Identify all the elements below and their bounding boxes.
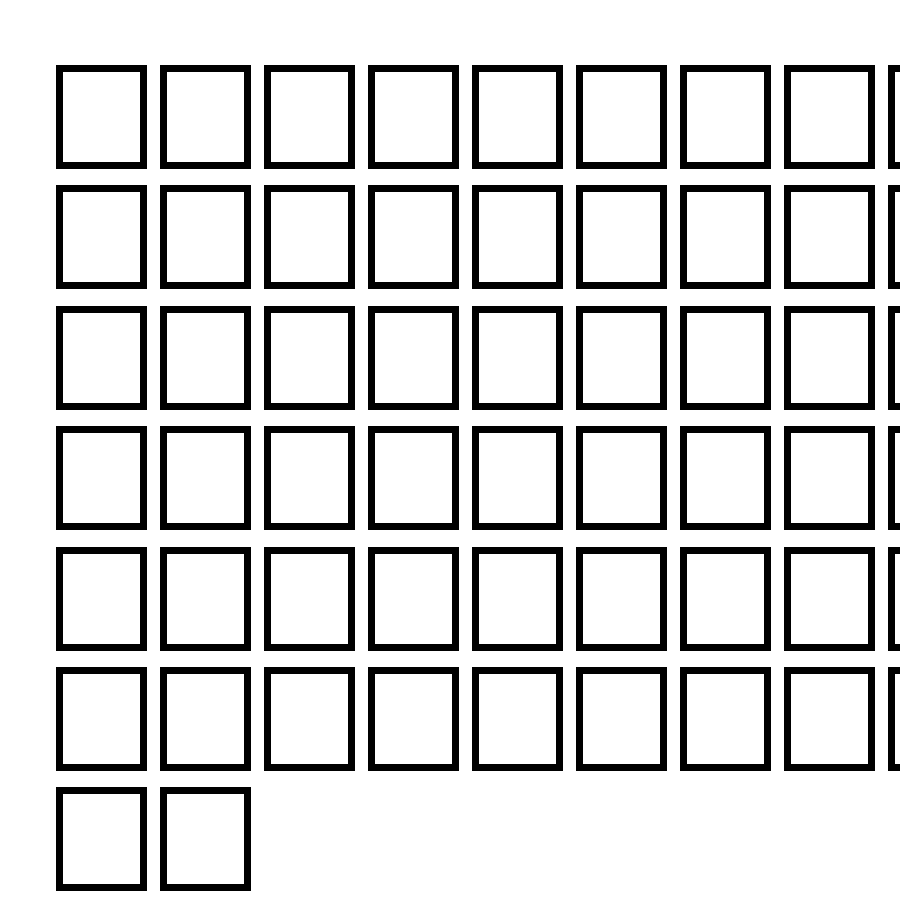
missing-glyph-box xyxy=(472,667,563,771)
missing-glyph-box xyxy=(784,426,875,530)
missing-glyph-box xyxy=(368,426,459,530)
missing-glyph-box xyxy=(368,667,459,771)
missing-glyph-box xyxy=(160,787,251,891)
missing-glyph-box xyxy=(472,547,563,651)
document-page xyxy=(0,0,900,900)
missing-glyph-box xyxy=(56,306,147,410)
missing-glyph-box xyxy=(368,185,459,289)
missing-glyph-box xyxy=(888,667,900,771)
missing-glyph-box xyxy=(160,306,251,410)
missing-glyph-box xyxy=(576,306,667,410)
missing-glyph-box xyxy=(368,65,459,169)
missing-glyph-box xyxy=(784,547,875,651)
missing-glyph-box xyxy=(888,185,900,289)
missing-glyph-box xyxy=(576,65,667,169)
missing-glyph-box xyxy=(680,306,771,410)
missing-glyph-box xyxy=(160,185,251,289)
missing-glyph-box xyxy=(680,547,771,651)
missing-glyph-box xyxy=(160,547,251,651)
missing-glyph-box xyxy=(680,185,771,289)
missing-glyph-box xyxy=(888,426,900,530)
missing-glyph-box xyxy=(576,667,667,771)
missing-glyph-box xyxy=(784,185,875,289)
missing-glyph-box xyxy=(160,667,251,771)
missing-glyph-box xyxy=(56,787,147,891)
missing-glyph-box xyxy=(160,426,251,530)
missing-glyph-box xyxy=(472,185,563,289)
missing-glyph-box xyxy=(264,185,355,289)
missing-glyph-box xyxy=(784,306,875,410)
missing-glyph-box xyxy=(888,547,900,651)
missing-glyph-box xyxy=(160,65,251,169)
missing-glyph-box xyxy=(472,65,563,169)
missing-glyph-box xyxy=(264,667,355,771)
missing-glyph-box xyxy=(264,547,355,651)
missing-glyph-box xyxy=(472,306,563,410)
missing-glyph-box xyxy=(680,426,771,530)
missing-glyph-box xyxy=(368,306,459,410)
missing-glyph-box xyxy=(56,667,147,771)
missing-glyph-box xyxy=(264,426,355,530)
missing-glyph-box xyxy=(368,547,459,651)
missing-glyph-box xyxy=(784,65,875,169)
missing-glyph-box xyxy=(784,667,875,771)
missing-glyph-box xyxy=(680,667,771,771)
missing-glyph-box xyxy=(56,547,147,651)
missing-glyph-box xyxy=(56,185,147,289)
missing-glyph-box xyxy=(56,426,147,530)
missing-glyph-box xyxy=(576,547,667,651)
missing-glyph-box xyxy=(576,426,667,530)
missing-glyph-box xyxy=(264,65,355,169)
missing-glyph-box xyxy=(56,65,147,169)
missing-glyph-box xyxy=(472,426,563,530)
missing-glyph-box xyxy=(888,65,900,169)
missing-glyph-box xyxy=(680,65,771,169)
missing-glyph-grid xyxy=(0,0,900,900)
missing-glyph-box xyxy=(264,306,355,410)
missing-glyph-box xyxy=(576,185,667,289)
missing-glyph-box xyxy=(888,306,900,410)
